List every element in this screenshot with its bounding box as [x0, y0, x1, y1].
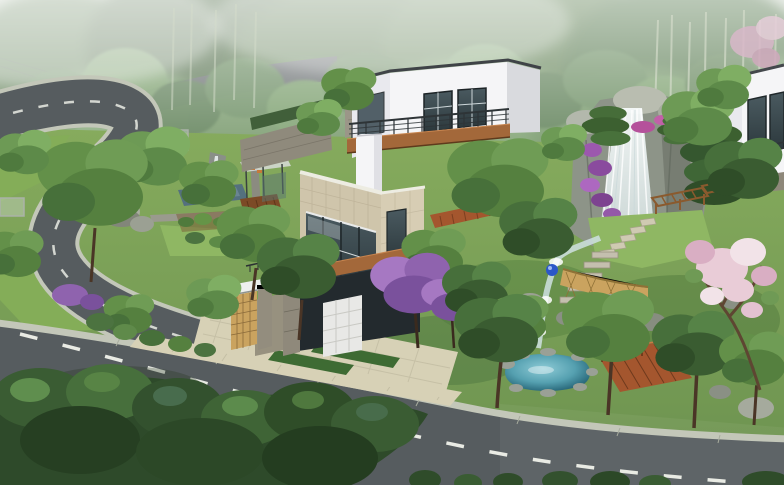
blue-garden-ornament: [546, 264, 558, 276]
upper-side-face: [507, 62, 540, 133]
architectural-render: [0, 0, 784, 485]
scene-svg: [0, 0, 784, 485]
garage-door: [323, 295, 362, 357]
